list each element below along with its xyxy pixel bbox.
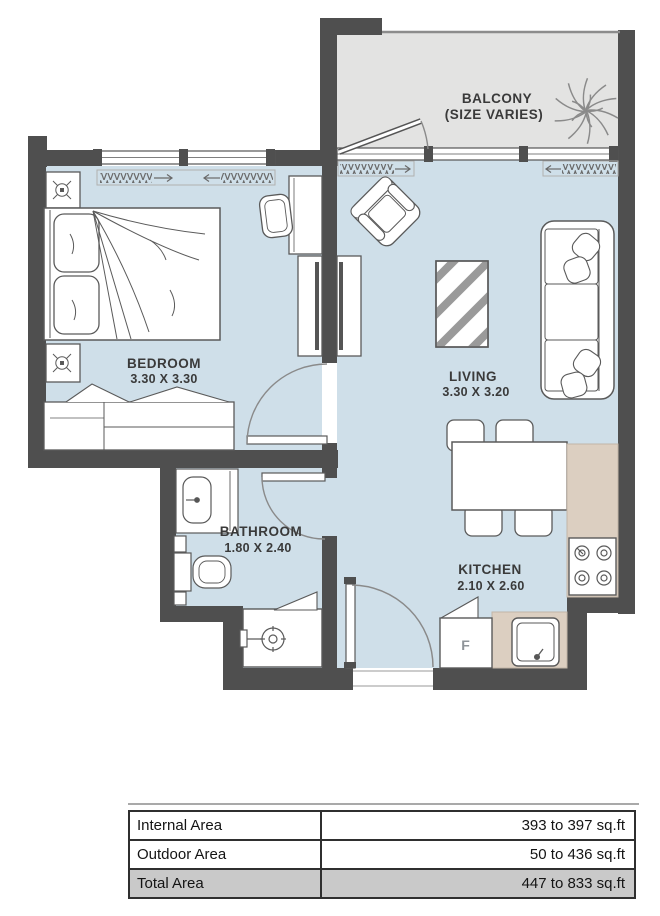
wardrobe-living-side [337,256,361,356]
area-row-label: Outdoor Area [130,841,322,868]
wall-balcony-left [320,18,337,158]
sofa [541,221,614,400]
wall-divider-lower [322,536,337,670]
bedroom-dims: 3.30 X 3.30 [130,372,197,386]
pillow [54,276,99,334]
bathroom-fixture [174,592,186,605]
table-row: Outdoor Area 50 to 436 sq.ft [130,841,634,870]
area-row-value: 393 to 397 sq.ft [322,812,634,839]
fridge-label: F [461,637,471,653]
toilet-paper-holder [174,536,186,552]
wardrobe-bedroom-side [298,256,322,356]
stove [569,538,616,595]
area-row-label: Total Area [130,870,322,897]
toilet [174,553,231,591]
balcony-window [337,146,618,162]
bed [44,208,220,340]
ceiling-light-icon [53,354,71,372]
wall-bedroom-bottom [28,450,338,468]
area-row-label: Internal Area [130,812,322,839]
floorplan-page: BEDROOM 3.30 X 3.30 [0,0,660,916]
table-row: Internal Area 393 to 397 sq.ft [130,812,634,841]
wall-right-outer [618,168,635,614]
bedroom-label: BEDROOM [127,356,201,371]
floorplan-drawing: BEDROOM 3.30 X 3.30 [0,0,660,760]
wall-bedroom-top-left [28,150,98,166]
area-row-value: 447 to 833 sq.ft [322,870,634,897]
area-table: Internal Area 393 to 397 sq.ft Outdoor A… [128,810,636,899]
kitchen-sink [512,618,559,666]
dining-table [452,442,567,510]
kitchen-dims: 2.10 X 2.60 [457,579,524,593]
balcony-note: (SIZE VARIES) [445,107,544,122]
desk-chair [259,193,294,238]
table-row-total: Total Area 447 to 833 sq.ft [130,870,634,897]
wall-bottom-right [433,668,587,690]
wall-divider-upper [322,166,337,363]
pillow [54,214,99,272]
wall-balcony-header [320,18,382,35]
balcony-label: BALCONY [462,91,532,106]
bathroom-label: BATHROOM [220,524,303,539]
desk [289,176,322,254]
table-top-separator [128,803,639,805]
wall-balcony-right [618,30,635,172]
area-row-value: 50 to 436 sq.ft [322,841,634,868]
ceiling-light-icon [53,181,71,199]
bathroom-dims: 1.80 X 2.40 [224,541,291,555]
living-dims: 3.30 X 3.20 [442,385,509,399]
bedroom-window [93,149,275,166]
living-label: LIVING [449,369,497,384]
kitchen-label: KITCHEN [458,562,522,577]
